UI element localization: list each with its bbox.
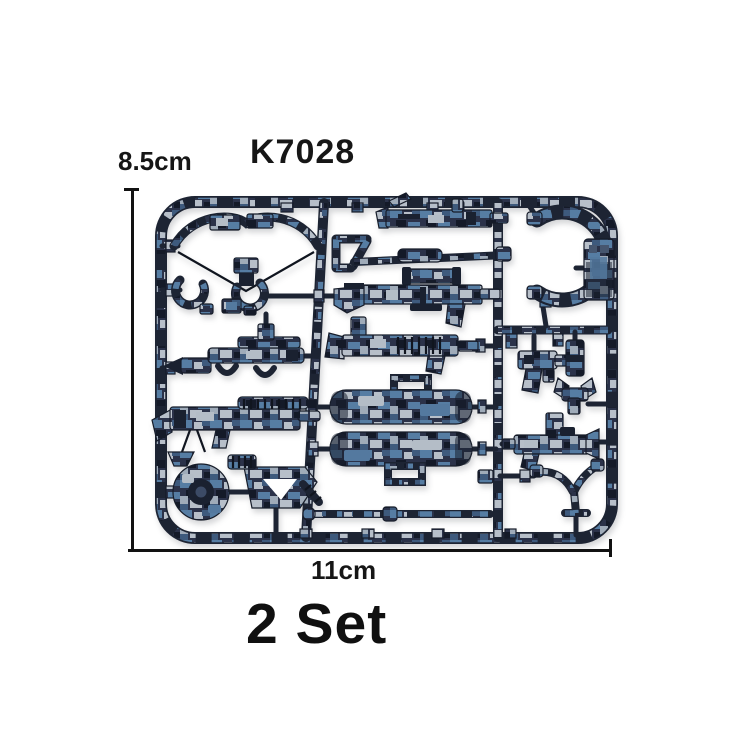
rod-part — [303, 507, 490, 521]
sprue-runners — [306, 203, 608, 537]
rocket-launcher-part — [163, 324, 304, 375]
magazine-part — [566, 340, 584, 376]
wrench-claw-part — [554, 378, 596, 414]
assault-smg-part — [502, 413, 599, 471]
saw-disc-part — [173, 464, 229, 520]
shovel-part — [336, 239, 511, 268]
weapon-sprue-graphic — [0, 0, 750, 750]
supply-case-part — [330, 378, 493, 483]
product-photo: K7028 8.5cm 11cm 2 Set — [0, 0, 750, 750]
id-plate-part — [584, 239, 614, 300]
slingshot-part — [530, 459, 604, 513]
crossbow-part — [174, 214, 318, 291]
